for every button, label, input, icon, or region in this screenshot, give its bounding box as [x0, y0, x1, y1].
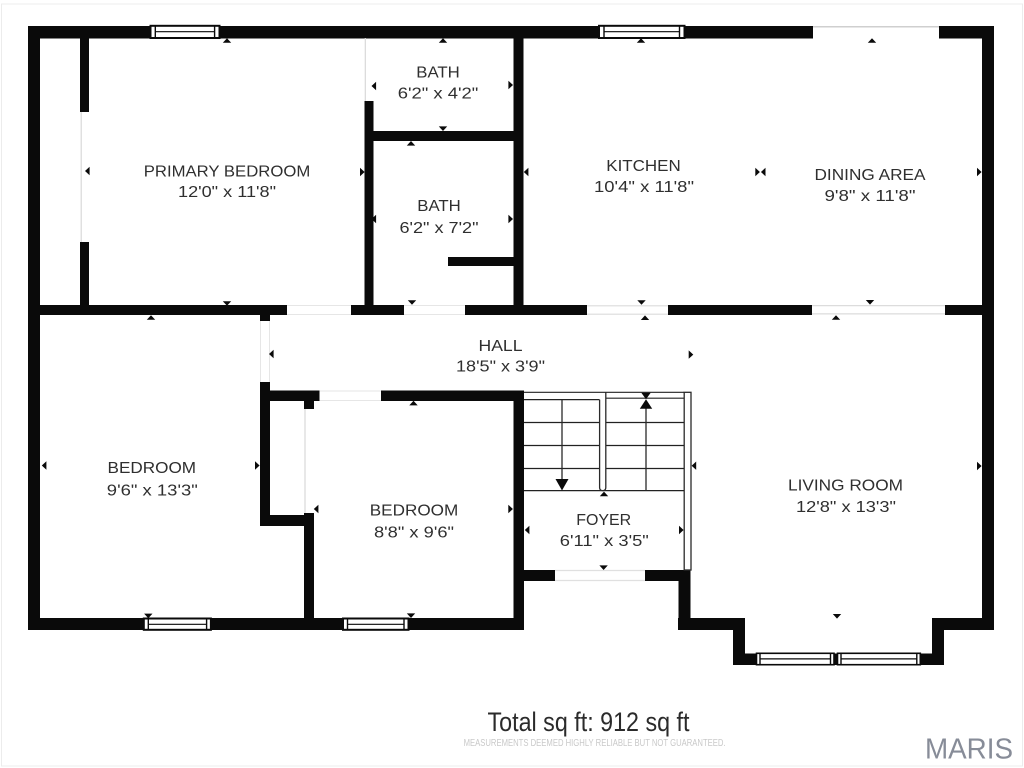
svg-text:PRIMARY BEDROOM: PRIMARY BEDROOM [144, 164, 311, 181]
svg-text:DINING AREA: DINING AREA [815, 167, 926, 184]
svg-text:FOYER: FOYER [576, 512, 631, 529]
svg-text:BATH: BATH [416, 64, 460, 81]
svg-text:12'8" x 13'3": 12'8" x 13'3" [796, 499, 896, 516]
svg-text:9'8" x 11'8": 9'8" x 11'8" [825, 188, 916, 205]
svg-text:HALL: HALL [479, 338, 523, 355]
svg-text:12'0" x 11'8": 12'0" x 11'8" [178, 184, 276, 201]
svg-text:BEDROOM: BEDROOM [108, 460, 197, 477]
svg-text:BEDROOM: BEDROOM [370, 502, 459, 519]
svg-text:6'2" x 4'2": 6'2" x 4'2" [398, 85, 479, 102]
svg-text:MARIS: MARIS [925, 733, 1013, 765]
svg-text:LIVING ROOM: LIVING ROOM [788, 477, 903, 494]
svg-text:KITCHEN: KITCHEN [606, 158, 681, 175]
svg-text:9'6" x 13'3": 9'6" x 13'3" [107, 482, 198, 499]
svg-text:6'11" x 3'5": 6'11" x 3'5" [560, 533, 649, 550]
svg-text:MEASUREMENTS DEEMED HIGHLY REL: MEASUREMENTS DEEMED HIGHLY RELIABLE BUT … [464, 737, 726, 749]
svg-text:10'4" x 11'8": 10'4" x 11'8" [594, 179, 694, 196]
svg-text:8'8" x 9'6": 8'8" x 9'6" [374, 524, 454, 541]
svg-text:6'2" x 7'2": 6'2" x 7'2" [400, 220, 479, 237]
svg-text:Total sq ft: 912 sq ft: Total sq ft: 912 sq ft [488, 707, 690, 737]
svg-text:BATH: BATH [417, 198, 461, 215]
svg-text:18'5" x 3'9": 18'5" x 3'9" [456, 358, 545, 375]
